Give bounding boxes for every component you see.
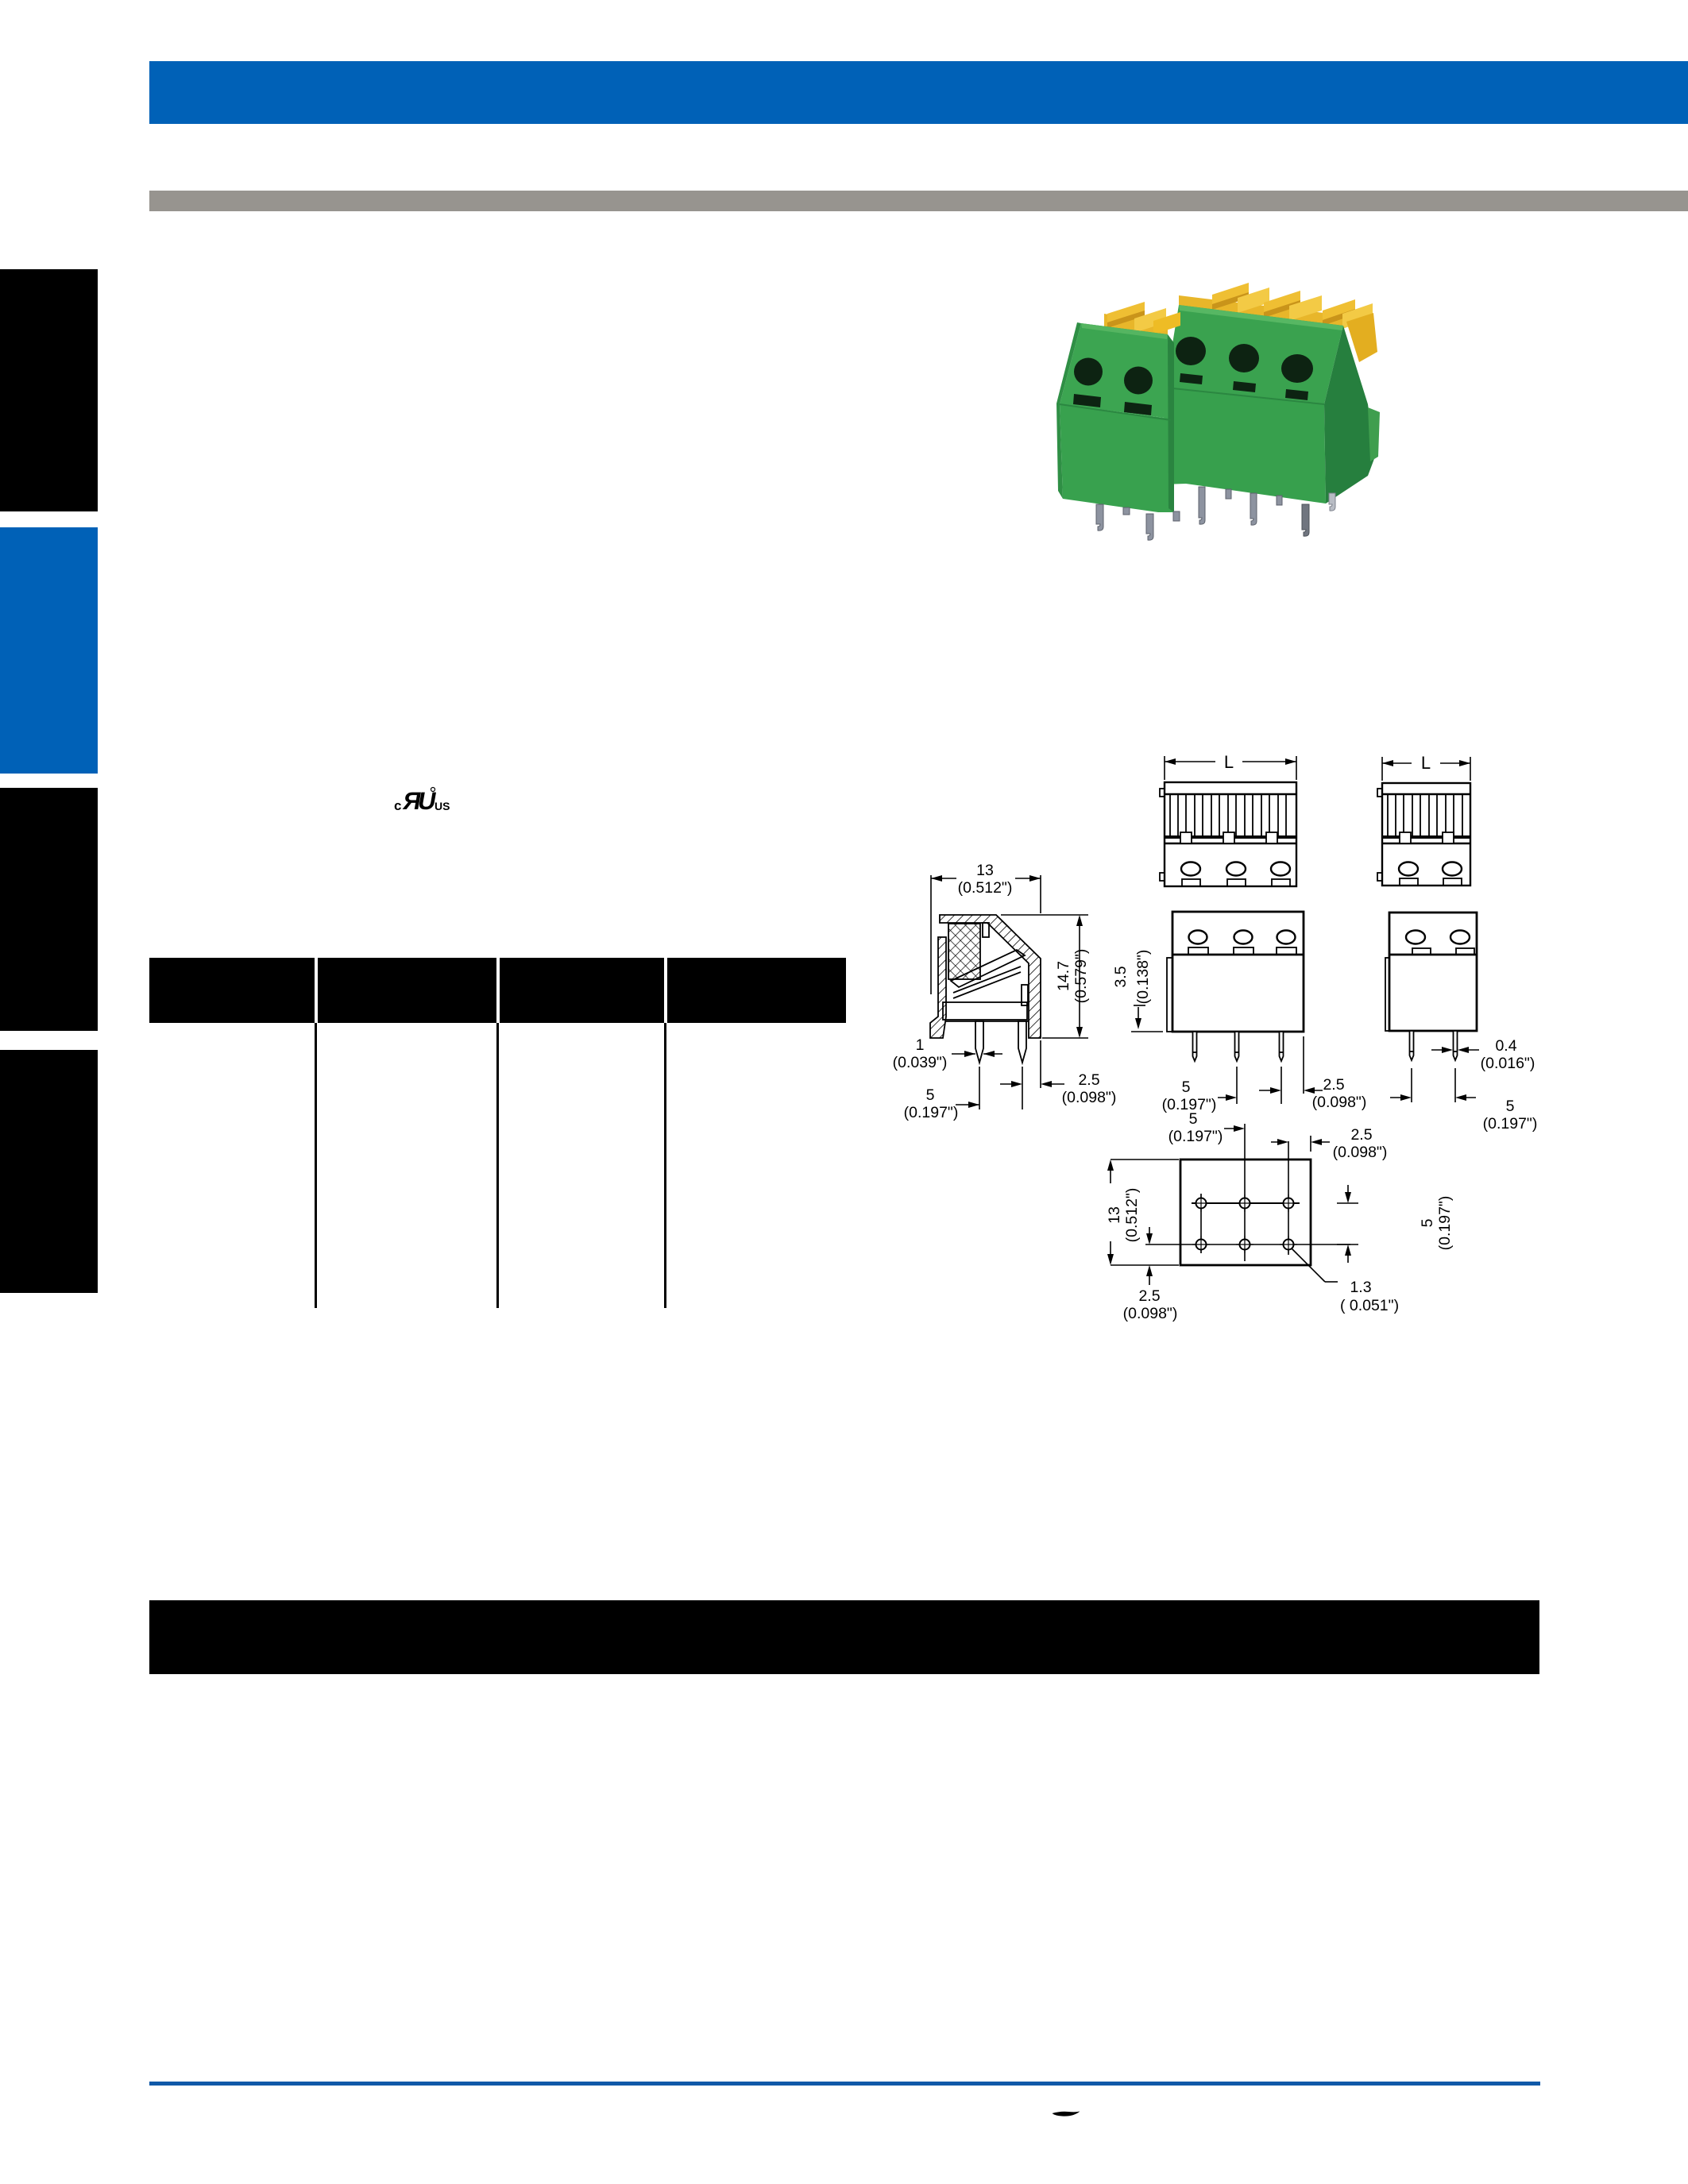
svg-text:5: 5 <box>1182 1078 1191 1096</box>
svg-text:(0.098"): (0.098") <box>1123 1305 1178 1322</box>
svg-text:1.3: 1.3 <box>1350 1279 1371 1296</box>
svg-text:(0.039"): (0.039") <box>893 1054 948 1071</box>
svg-text:(0.098"): (0.098") <box>1333 1144 1388 1161</box>
svg-text:L: L <box>1224 752 1234 772</box>
svg-text:(0.197"): (0.197") <box>904 1104 959 1121</box>
svg-text:(0.138"): (0.138") <box>1134 950 1152 1005</box>
svg-text:(0.197"): (0.197") <box>1436 1196 1454 1251</box>
svg-text:5: 5 <box>1189 1110 1198 1128</box>
svg-text:(0.197"): (0.197") <box>1483 1115 1538 1133</box>
svg-text:(0.512"): (0.512") <box>958 879 1013 897</box>
svg-text:0.4: 0.4 <box>1495 1037 1516 1055</box>
svg-text:13: 13 <box>1106 1206 1123 1224</box>
svg-text:( 0.051"): ( 0.051") <box>1340 1297 1399 1314</box>
svg-text:(0.197"): (0.197") <box>1168 1128 1223 1145</box>
svg-text:(0.098"): (0.098") <box>1062 1089 1117 1106</box>
svg-text:13: 13 <box>976 862 994 879</box>
svg-text:5: 5 <box>926 1086 935 1104</box>
svg-text:3.5: 3.5 <box>1112 966 1130 987</box>
svg-text:US: US <box>435 800 450 812</box>
svg-text:(0.579"): (0.579") <box>1072 949 1090 1004</box>
svg-text:c: c <box>394 798 401 813</box>
svg-text:2.5: 2.5 <box>1350 1126 1372 1144</box>
svg-text:(0.098"): (0.098") <box>1312 1094 1367 1111</box>
svg-text:(0.016"): (0.016") <box>1481 1055 1535 1072</box>
svg-text:(0.512"): (0.512") <box>1123 1188 1141 1243</box>
svg-text:2.5: 2.5 <box>1323 1076 1344 1094</box>
svg-text:5: 5 <box>1419 1218 1436 1227</box>
svg-text:2.5: 2.5 <box>1078 1071 1099 1089</box>
svg-text:1: 1 <box>916 1036 925 1054</box>
svg-text:2.5: 2.5 <box>1138 1287 1160 1305</box>
svg-text:5: 5 <box>1506 1098 1515 1115</box>
svg-text:14.7: 14.7 <box>1055 961 1072 991</box>
svg-text:L: L <box>1421 753 1431 773</box>
